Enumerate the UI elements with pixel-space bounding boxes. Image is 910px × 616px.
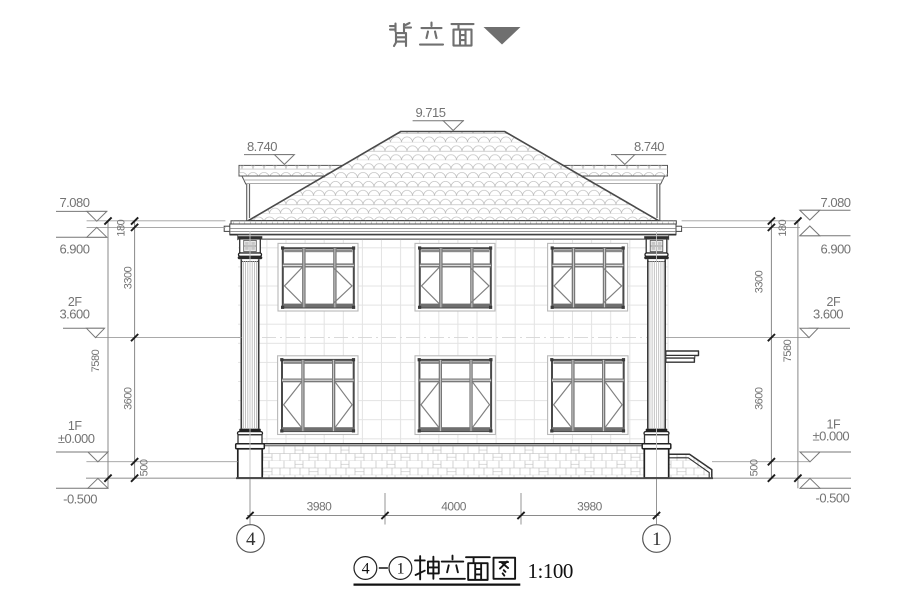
svg-text:1: 1 xyxy=(652,529,661,550)
svg-text:3.600: 3.600 xyxy=(813,307,843,322)
svg-text:±0.000: ±0.000 xyxy=(813,429,850,444)
svg-text:-0.500: -0.500 xyxy=(816,491,850,506)
svg-text:3300: 3300 xyxy=(754,270,766,293)
svg-text:3600: 3600 xyxy=(754,387,766,410)
svg-text:180: 180 xyxy=(777,219,789,236)
svg-text:500: 500 xyxy=(139,459,151,476)
svg-text:3600: 3600 xyxy=(123,387,135,410)
svg-text:1: 1 xyxy=(397,561,405,578)
svg-text:7580: 7580 xyxy=(90,349,102,372)
svg-text:180: 180 xyxy=(116,219,128,236)
svg-text:4000: 4000 xyxy=(441,500,467,514)
svg-text:6.900: 6.900 xyxy=(821,242,851,257)
svg-text:4: 4 xyxy=(362,561,370,578)
svg-text:3980: 3980 xyxy=(307,500,333,514)
svg-text:500: 500 xyxy=(749,459,761,476)
svg-text:3.600: 3.600 xyxy=(59,307,89,322)
svg-text:9.715: 9.715 xyxy=(415,105,445,120)
svg-text:7580: 7580 xyxy=(782,339,794,362)
svg-text:8.740: 8.740 xyxy=(247,139,277,154)
svg-text:7.080: 7.080 xyxy=(821,195,851,210)
svg-text:-0.500: -0.500 xyxy=(63,492,97,507)
svg-text:±0.000: ±0.000 xyxy=(58,431,95,446)
svg-text:4: 4 xyxy=(246,529,256,550)
svg-text:6.900: 6.900 xyxy=(59,242,89,257)
svg-text:1:100: 1:100 xyxy=(528,559,573,583)
svg-text:3300: 3300 xyxy=(123,266,135,289)
svg-text:8.740: 8.740 xyxy=(634,139,664,154)
svg-text:3980: 3980 xyxy=(577,500,603,514)
svg-text:7.080: 7.080 xyxy=(59,195,89,210)
